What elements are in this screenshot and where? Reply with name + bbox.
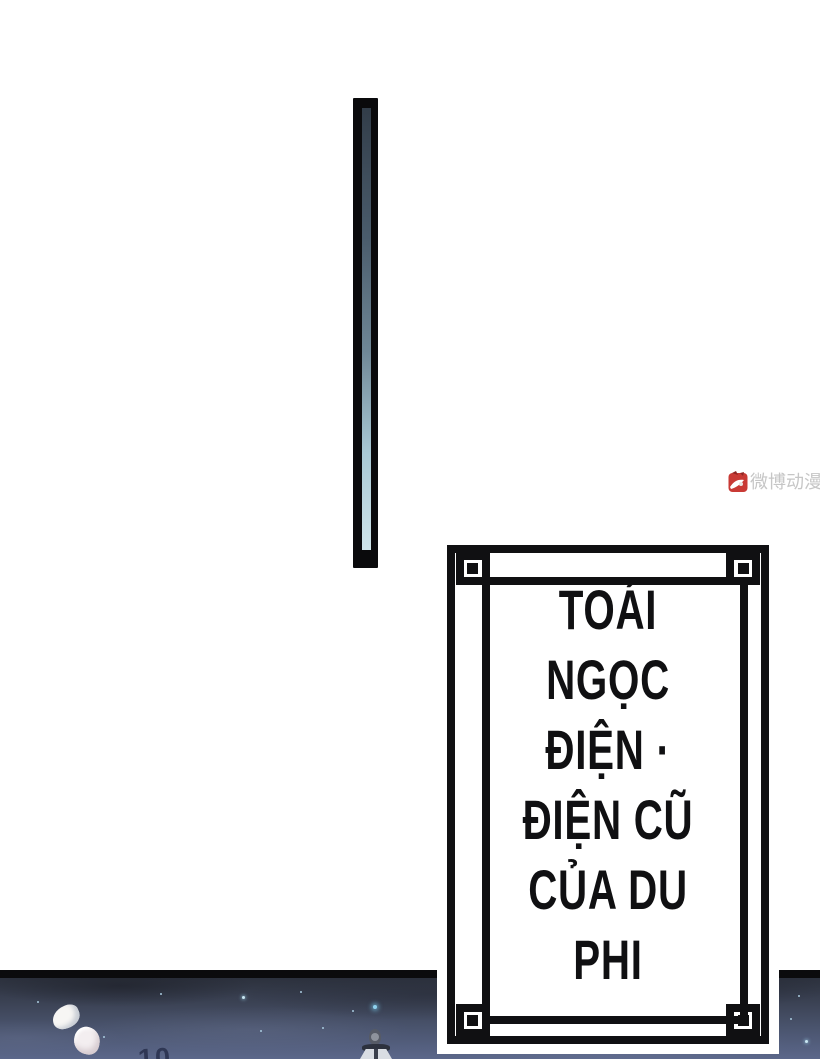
star-icon [373, 1005, 377, 1009]
star-icon [260, 1030, 262, 1032]
star-icon [160, 993, 162, 995]
star-icon [790, 1018, 792, 1020]
star-icon [300, 991, 302, 993]
title-box: TOÁI NGỌC ĐIỆN · ĐIỆN CŨ CỦA DU PHI [437, 535, 779, 1054]
watermark-text: 微博动漫 [750, 471, 820, 493]
star-icon [322, 1027, 324, 1029]
figure-silhouette-robe-stripe [374, 1049, 378, 1059]
scroll-rod-inner-stripe [362, 108, 371, 550]
title-line: ĐIỆN CŨ [517, 784, 698, 854]
star-icon [805, 1040, 808, 1043]
ground-mark: 10 [137, 1042, 173, 1059]
title-line: CỦA DU [517, 854, 698, 924]
title-line: NGỌC [517, 644, 698, 714]
title-line: ĐIỆN · [517, 714, 698, 784]
hanging-scroll-rod [353, 98, 378, 568]
watermark: 微博动漫 [728, 471, 820, 493]
weibo-dongman-logo-icon [728, 471, 748, 493]
star-icon [242, 996, 245, 999]
figure-silhouette-face [371, 1033, 379, 1041]
comic-page: 微博动漫 10 [0, 0, 820, 1059]
title-line: TOÁI [517, 574, 698, 644]
star-icon [352, 1010, 354, 1012]
title-text: TOÁI NGỌC ĐIỆN · ĐIỆN CŨ CỦA DU PHI [482, 574, 734, 994]
star-icon [798, 995, 800, 997]
star-icon [37, 1001, 39, 1003]
title-line: PHI [517, 924, 698, 994]
star-icon [103, 1036, 105, 1038]
